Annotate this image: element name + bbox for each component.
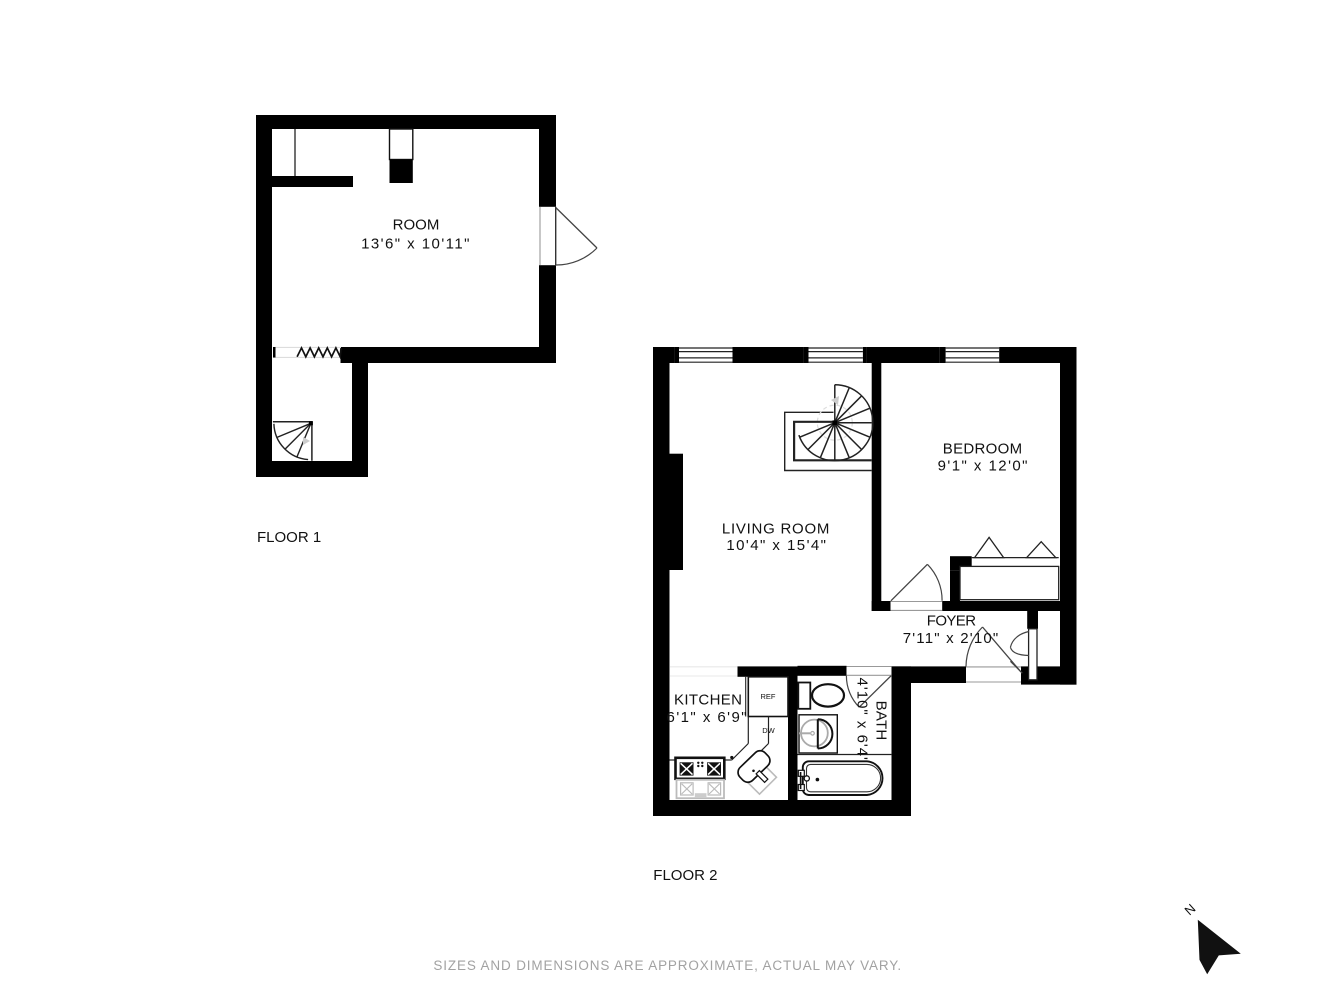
svg-text:9'1" x 12'0": 9'1" x 12'0"	[938, 457, 1029, 474]
svg-text:KITCHEN: KITCHEN	[674, 691, 742, 708]
svg-text:13'6" x 10'11": 13'6" x 10'11"	[361, 236, 471, 253]
svg-text:REF: REF	[761, 692, 776, 701]
svg-text:FLOOR 1: FLOOR 1	[257, 529, 321, 546]
svg-text:4'10" x 6'4": 4'10" x 6'4"	[853, 678, 870, 764]
svg-text:6'1" x 6'9": 6'1" x 6'9"	[667, 709, 749, 726]
svg-text:LIVING ROOM: LIVING ROOM	[722, 520, 830, 537]
svg-text:DW: DW	[762, 726, 775, 735]
svg-text:BEDROOM: BEDROOM	[943, 441, 1023, 458]
svg-text:SIZES AND DIMENSIONS ARE APPRO: SIZES AND DIMENSIONS ARE APPROXIMATE, AC…	[433, 958, 902, 973]
svg-text:FLOOR 2: FLOOR 2	[653, 867, 717, 884]
svg-text:BATH: BATH	[872, 701, 889, 741]
svg-text:10'4" x 15'4": 10'4" x 15'4"	[726, 537, 827, 554]
svg-text:FOYER: FOYER	[927, 612, 976, 629]
svg-text:7'11" x 2'10": 7'11" x 2'10"	[903, 630, 1000, 647]
svg-text:ROOM: ROOM	[393, 216, 440, 233]
